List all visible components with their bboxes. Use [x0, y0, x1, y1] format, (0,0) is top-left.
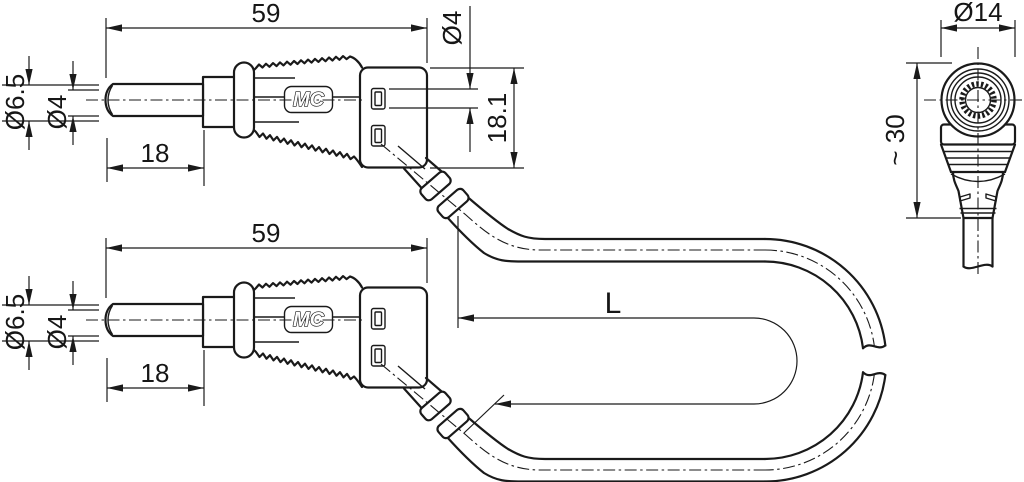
dim-label-d14: Ø14: [953, 0, 1002, 27]
dim-label-30: ~ 30: [880, 114, 910, 165]
loop-outer-edge: [765, 375, 885, 481]
technical-drawing-page: MC 59 Ø6.5 Ø4: [0, 0, 1024, 482]
dim-label-18-1: 18.1: [482, 93, 512, 144]
cable-break-mark: [863, 372, 885, 375]
loop-inner-edge: [765, 262, 863, 349]
plug-front-view: Ø14 ~ 30: [880, 0, 1024, 274]
loop-centerline: [765, 250, 874, 347]
cable-break-mark: [863, 345, 885, 348]
bottom-plug-view: [0, 218, 765, 482]
loop-centerline: [765, 374, 874, 470]
top-plug-view: [0, 0, 765, 262]
dim-label-socket-d4: Ø4: [437, 11, 467, 46]
dim-label-L: L: [605, 287, 622, 320]
cable-loop: [765, 239, 885, 482]
dim-body-width: 18.1: [430, 68, 524, 168]
cable-assembly-drawing: MC 59 Ø6.5 Ø4: [0, 0, 1024, 482]
dim-cable-length: L: [458, 216, 797, 433]
loop-inner-edge: [765, 372, 863, 459]
